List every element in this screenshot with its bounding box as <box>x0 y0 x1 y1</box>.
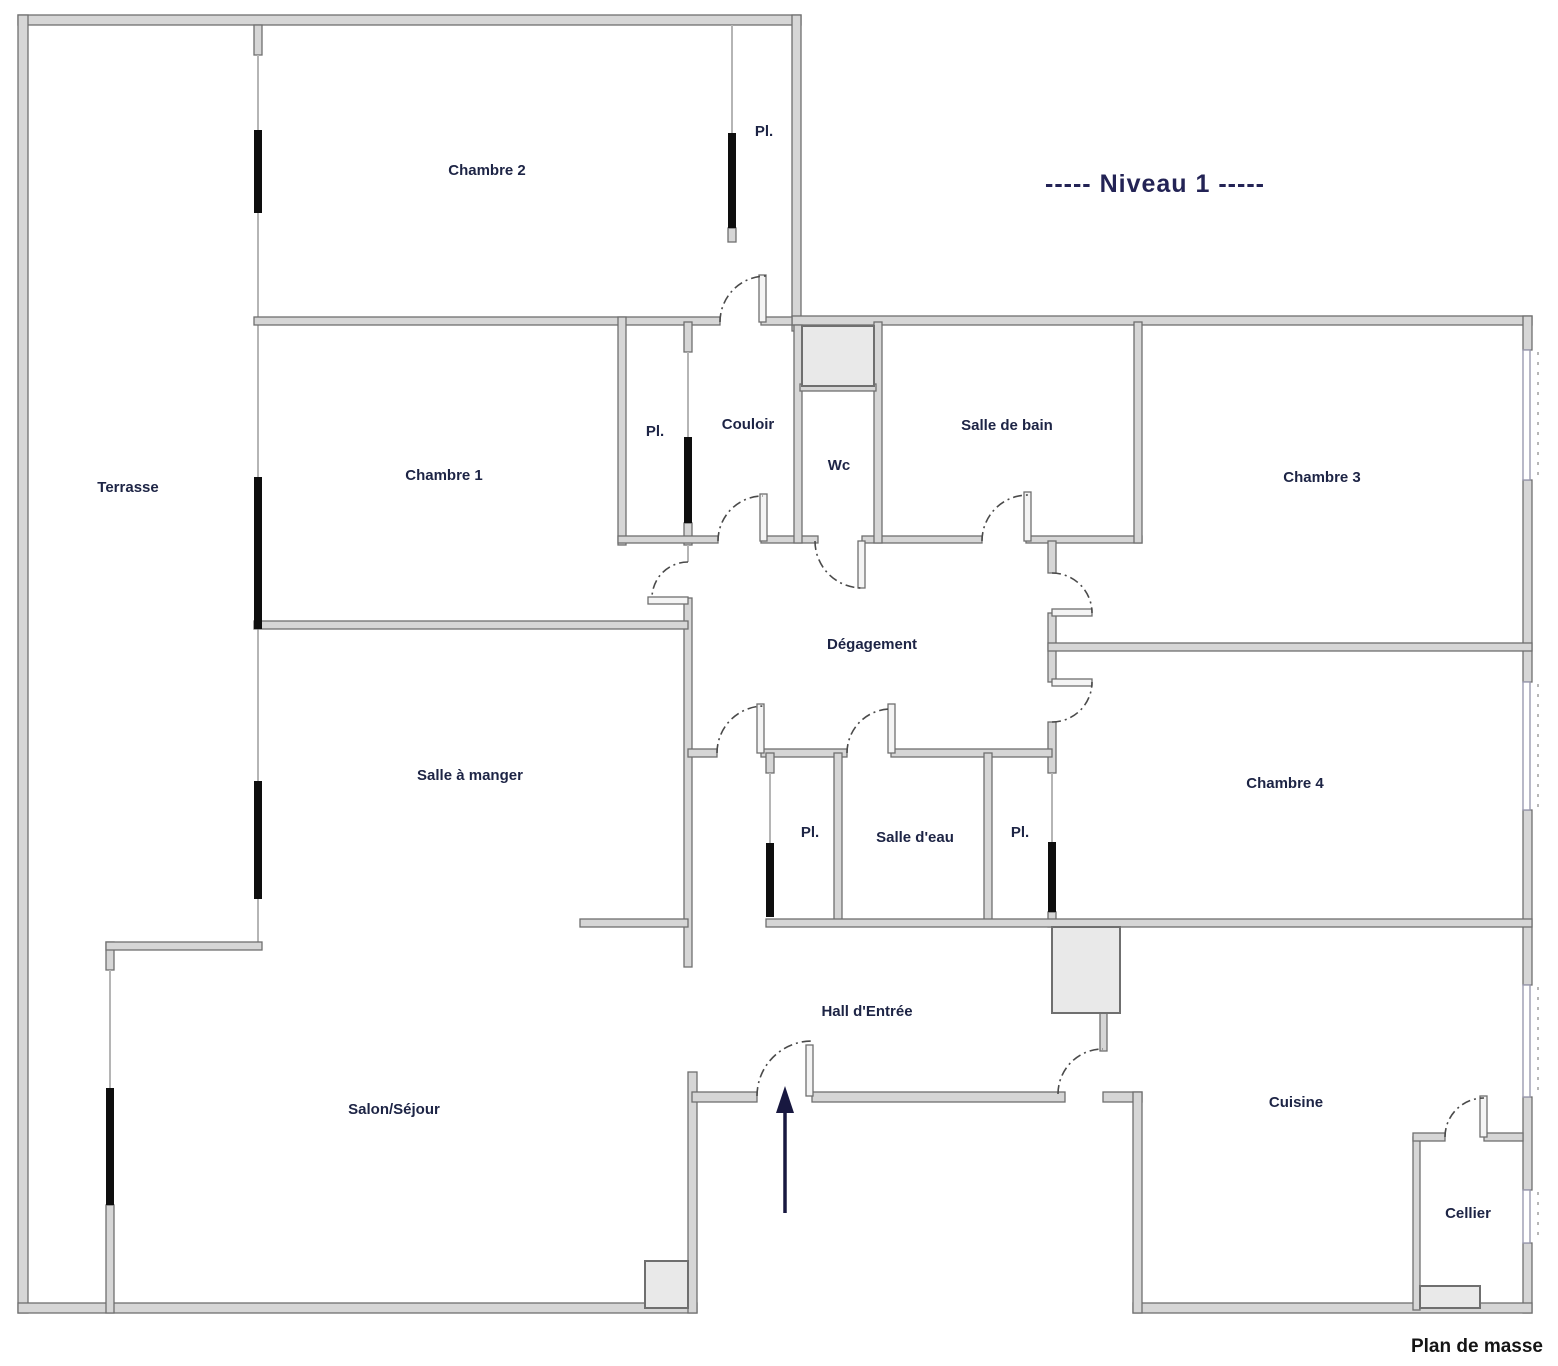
duct-salon <box>645 1261 688 1308</box>
door-leaf-salle-a-manger <box>757 704 764 753</box>
door-leaf-salle-de-bain <box>1024 492 1031 541</box>
room-label-pl-gauche: Pl. <box>801 824 819 841</box>
glazing-bar <box>106 1088 114 1205</box>
wall-segment <box>254 317 720 325</box>
wall-segment <box>1523 480 1532 682</box>
wall-segment <box>684 322 692 352</box>
glazing-bar <box>254 781 262 899</box>
plan-de-masse-label: Plan de masse <box>1411 1336 1543 1357</box>
door-leaf-cellier <box>1480 1096 1487 1137</box>
window-chambre-4 <box>1523 682 1530 810</box>
door-leaf-couloir <box>760 494 767 541</box>
duct-hall <box>1052 927 1120 1013</box>
wall-segment <box>106 1205 114 1313</box>
wall-segment <box>1484 1133 1523 1141</box>
wall-segment <box>254 25 262 55</box>
glazing-bar <box>254 477 262 629</box>
structural-bars <box>106 130 1056 1205</box>
window-cuisine <box>1523 985 1530 1097</box>
door-leaf-entrance <box>806 1045 813 1096</box>
door-leaf-salle-d-eau <box>888 704 895 753</box>
room-label-hall-entree: Hall d'Entrée <box>821 1003 912 1020</box>
room-label-wc: Wc <box>828 457 851 474</box>
window-cellier <box>1523 1190 1530 1243</box>
room-label-terrasse: Terrasse <box>97 479 158 496</box>
glazing-bar <box>766 843 774 917</box>
wall-segment <box>618 536 718 543</box>
wall-segment <box>1048 722 1056 773</box>
wall-segment <box>618 317 626 545</box>
wall-segment <box>684 598 692 967</box>
room-label-salle-de-bain: Salle de bain <box>961 417 1053 434</box>
room-label-cellier: Cellier <box>1445 1205 1491 1222</box>
door-leaf-chambre-2 <box>759 275 766 322</box>
interior-walls <box>106 25 1532 1313</box>
level-title: ----- Niveau 1 ----- <box>1045 170 1265 198</box>
outer-walls <box>18 15 1532 1313</box>
wall-segment <box>1523 1097 1532 1190</box>
door-leaf-wc <box>858 541 865 588</box>
wall-segment <box>812 1092 1065 1102</box>
wall-segment <box>728 228 736 242</box>
door-arc-salle-de-bain <box>982 495 1028 541</box>
wall-segment <box>761 536 818 543</box>
room-label-couloir: Couloir <box>722 416 775 433</box>
duct-cellier <box>1420 1286 1480 1308</box>
door-arc-chambre-1 <box>652 562 688 598</box>
room-label-pl-couloir: Pl. <box>646 423 664 440</box>
room-label-salon-sejour: Salon/Séjour <box>348 1101 440 1118</box>
entrance-arrow-head <box>776 1086 794 1113</box>
wall-segment <box>1100 1013 1107 1051</box>
glazing-bar <box>684 437 692 523</box>
wall-segment <box>794 325 802 543</box>
door-arc-wc <box>815 541 862 588</box>
wall-segment <box>766 919 1532 927</box>
room-label-salle-d-eau: Salle d'eau <box>876 829 954 846</box>
entrance-arrow <box>776 1086 794 1213</box>
room-label-pl-chambre-2: Pl. <box>755 123 773 140</box>
wall-segment <box>1133 1092 1142 1313</box>
wall-segment <box>792 15 801 331</box>
floorplan-page: Terrasse Chambre 2 Pl. Chambre 1 Pl. Cou… <box>0 0 1558 1366</box>
wall-segment <box>18 1303 697 1313</box>
wall-segment <box>1026 536 1142 543</box>
room-label-chambre-3: Chambre 3 <box>1283 469 1361 486</box>
wall-segment <box>254 621 688 629</box>
wall-segment <box>766 753 774 773</box>
wall-segment <box>1523 316 1532 350</box>
door-arc-cellier <box>1445 1098 1484 1137</box>
wall-segment <box>106 942 262 950</box>
window-chambre-3 <box>1523 350 1530 480</box>
room-label-salle-a-manger: Salle à manger <box>417 767 523 784</box>
room-label-chambre-2: Chambre 2 <box>448 162 526 179</box>
wall-segment <box>792 316 1532 325</box>
door-leaf-chambre-1 <box>648 597 688 604</box>
door-leaf-chambre-3 <box>1052 609 1092 616</box>
glazing-bar <box>254 130 262 213</box>
door-arc-chambre-3 <box>1052 573 1092 613</box>
wall-segment <box>1134 322 1142 543</box>
wall-segment <box>984 753 992 923</box>
wall-segment <box>18 15 28 1313</box>
wall-segment <box>688 749 717 757</box>
room-label-pl-droit: Pl. <box>1011 824 1029 841</box>
wall-segment <box>874 322 882 543</box>
door-arc-chambre-4 <box>1052 682 1092 722</box>
wall-segment <box>580 919 688 927</box>
room-label-degagement: Dégagement <box>827 636 917 653</box>
wall-segment <box>692 1092 757 1102</box>
door-arc-couloir <box>718 496 763 541</box>
wall-segment <box>1523 810 1532 985</box>
duct-couloir <box>802 326 874 386</box>
room-label-chambre-4: Chambre 4 <box>1246 775 1324 792</box>
wall-segment <box>1413 1133 1445 1141</box>
room-label-chambre-1: Chambre 1 <box>405 467 483 484</box>
wall-segment <box>688 1072 697 1313</box>
wall-segment <box>1048 643 1532 651</box>
wall-segment <box>834 753 842 923</box>
door-leaf-chambre-4 <box>1052 679 1092 686</box>
room-label-cuisine: Cuisine <box>1269 1094 1323 1111</box>
wall-segment <box>1048 541 1056 573</box>
glazing-bar <box>1048 842 1056 912</box>
door-arc-salle-d-eau <box>847 709 891 753</box>
floorplan-svg: Terrasse Chambre 2 Pl. Chambre 1 Pl. Cou… <box>0 0 1558 1366</box>
glazing-bar <box>728 133 736 228</box>
wall-segment <box>891 749 1052 757</box>
wall-segment <box>18 15 801 25</box>
wall-segment <box>1413 1137 1420 1310</box>
door-arc-cuisine <box>1058 1049 1103 1094</box>
